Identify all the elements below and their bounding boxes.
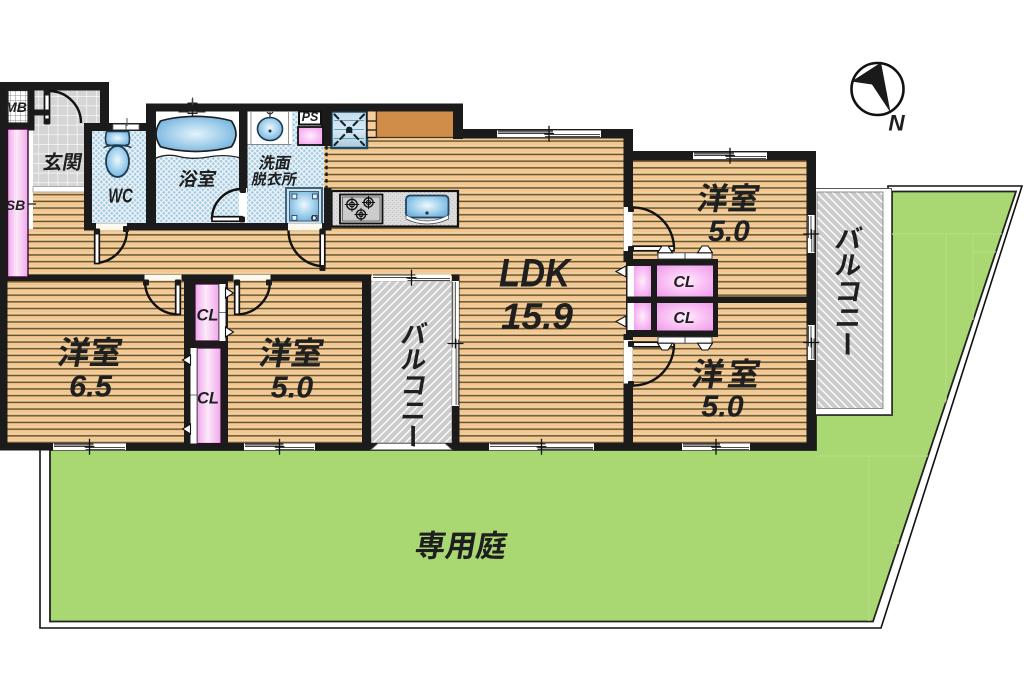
- svg-text:15.9: 15.9: [501, 296, 573, 337]
- svg-text:5.0: 5.0: [701, 390, 743, 424]
- svg-text:CL: CL: [673, 310, 694, 327]
- svg-text:LDK: LDK: [499, 252, 573, 296]
- svg-text:CL: CL: [197, 307, 219, 325]
- svg-text:6.5: 6.5: [69, 369, 113, 404]
- svg-text:WC: WC: [108, 186, 133, 208]
- svg-text:CL: CL: [673, 274, 694, 291]
- svg-text:N: N: [888, 111, 905, 136]
- svg-text:5.0: 5.0: [271, 371, 313, 405]
- svg-text:MB: MB: [5, 99, 27, 115]
- svg-text:PS: PS: [302, 110, 319, 124]
- svg-text:5.0: 5.0: [708, 215, 750, 248]
- svg-text:CL: CL: [197, 390, 219, 408]
- svg-text:SB: SB: [6, 197, 25, 213]
